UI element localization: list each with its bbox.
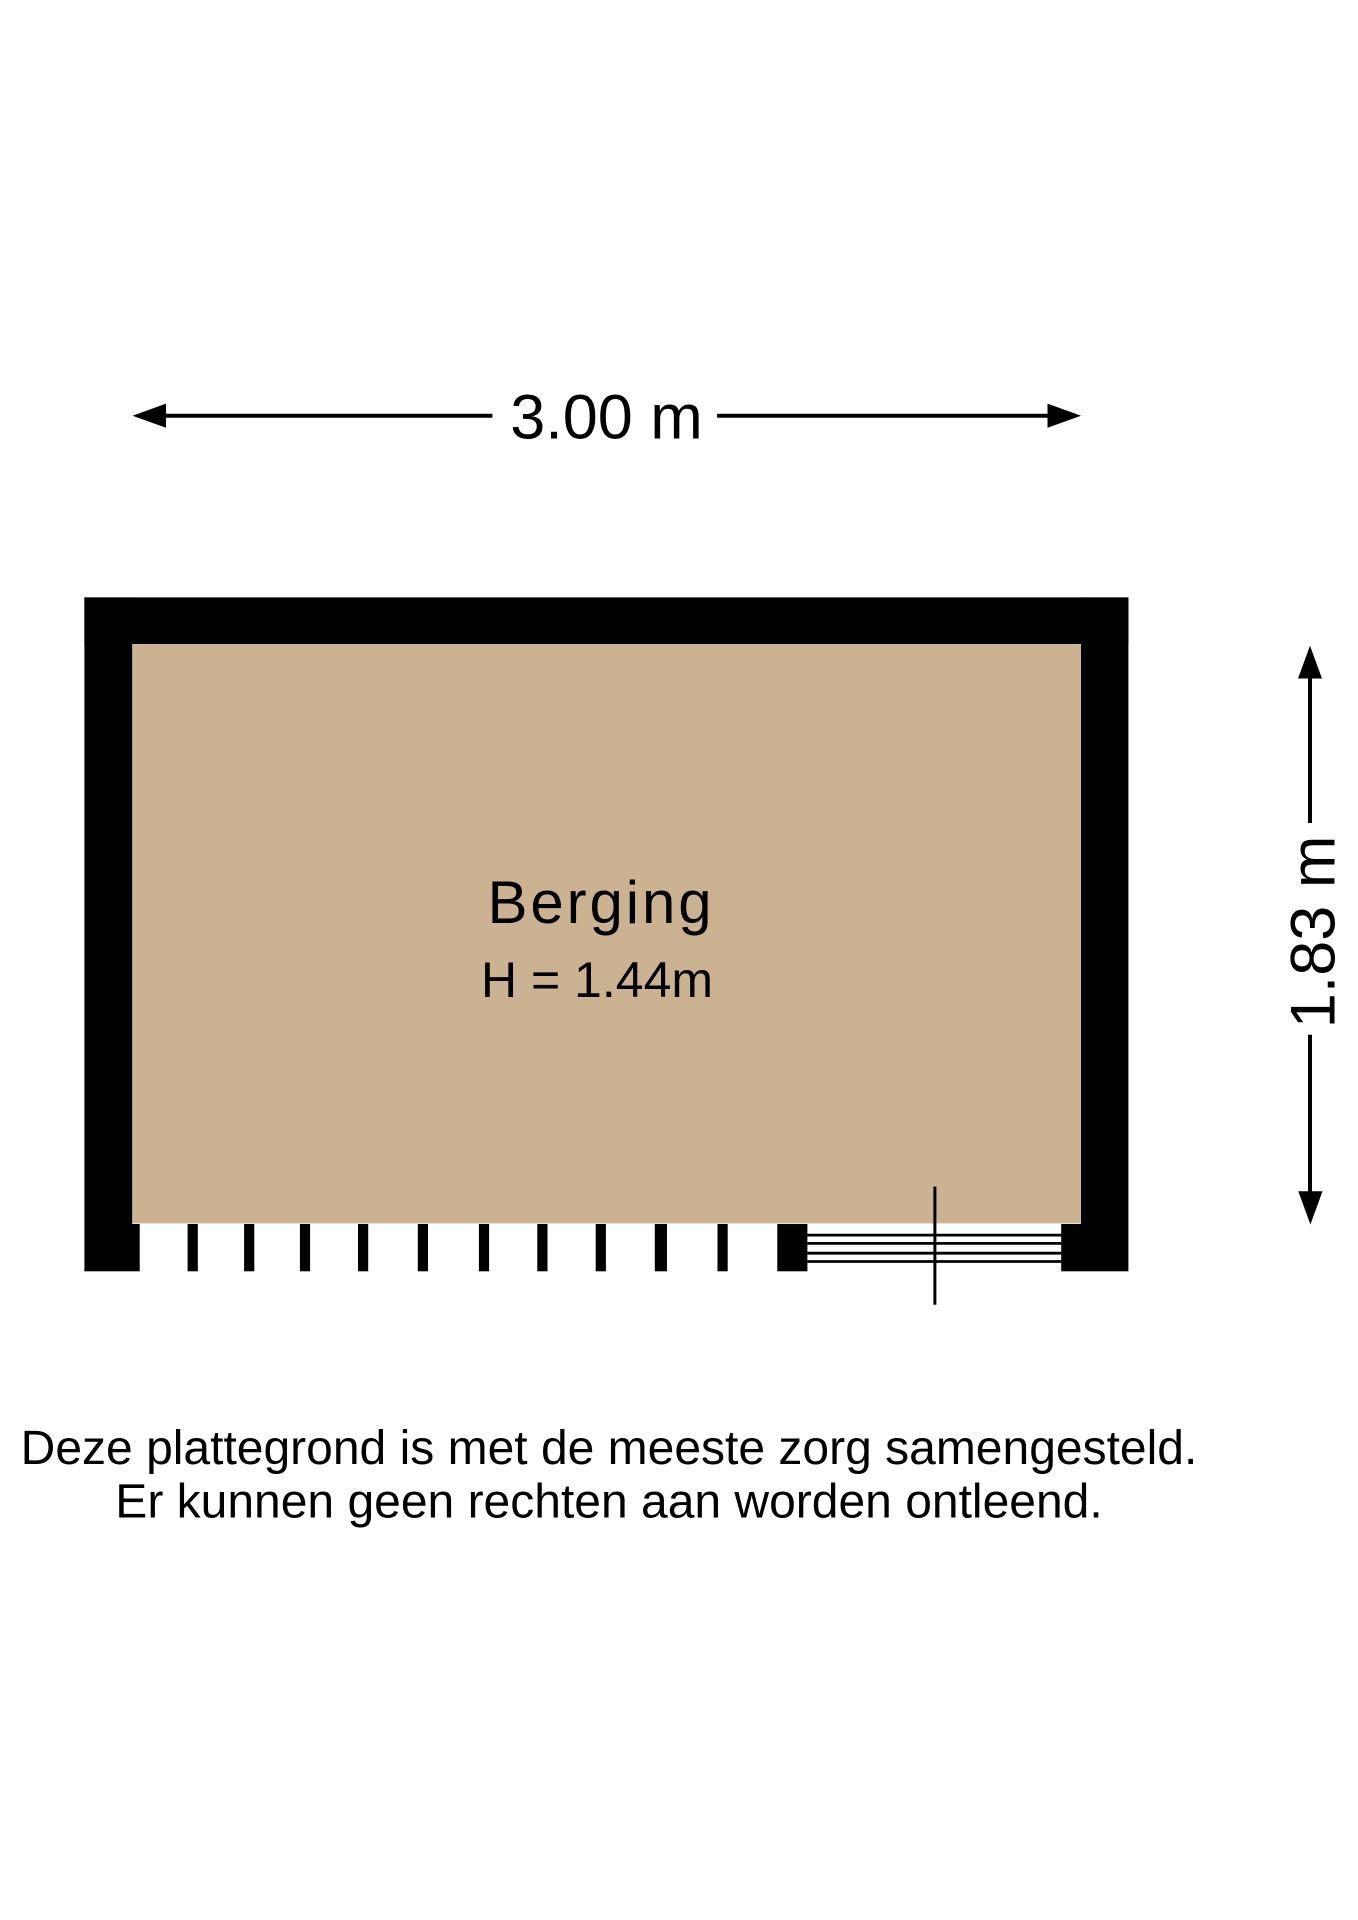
- svg-text:1.83 m: 1.83 m: [1278, 836, 1348, 1029]
- svg-text:Berging: Berging: [487, 869, 714, 936]
- svg-text:3.00 m: 3.00 m: [510, 383, 703, 453]
- svg-text:H = 1.44m: H = 1.44m: [481, 952, 713, 1008]
- svg-text:Deze plattegrond is met de mee: Deze plattegrond is met de meeste zorg s…: [21, 1422, 1198, 1475]
- svg-text:Er kunnen geen rechten aan wor: Er kunnen geen rechten aan worden ontlee…: [115, 1476, 1102, 1529]
